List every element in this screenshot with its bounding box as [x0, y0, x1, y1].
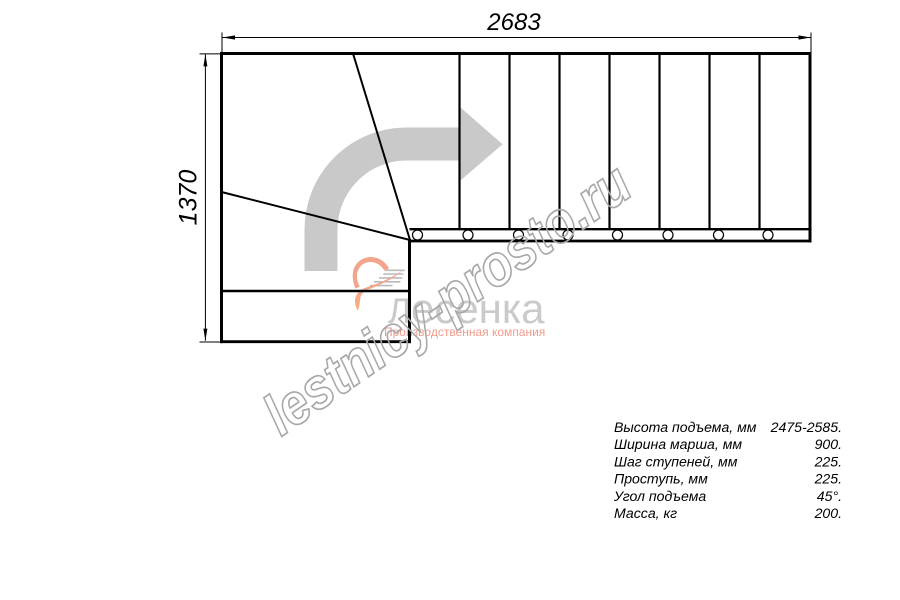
svg-text:Высота подъема, мм: Высота подъема, мм	[614, 419, 757, 435]
svg-text:1370: 1370	[175, 170, 203, 226]
svg-text:Шаг ступеней, мм: Шаг ступеней, мм	[614, 453, 738, 469]
svg-text:900.: 900.	[815, 436, 842, 452]
svg-text:225.: 225.	[814, 453, 842, 469]
svg-text:Угол подъема: Угол подъема	[613, 488, 706, 504]
svg-text:Масса, кг: Масса, кг	[614, 505, 677, 521]
svg-text:2683: 2683	[486, 9, 541, 36]
svg-text:45°.: 45°.	[817, 488, 842, 504]
svg-text:225.: 225.	[814, 471, 842, 487]
svg-text:2475-2585.: 2475-2585.	[770, 419, 842, 435]
svg-text:Проступь, мм: Проступь, мм	[614, 471, 708, 487]
svg-text:Ширина марша, мм: Ширина марша, мм	[614, 436, 742, 452]
svg-text:200.: 200.	[814, 505, 842, 521]
